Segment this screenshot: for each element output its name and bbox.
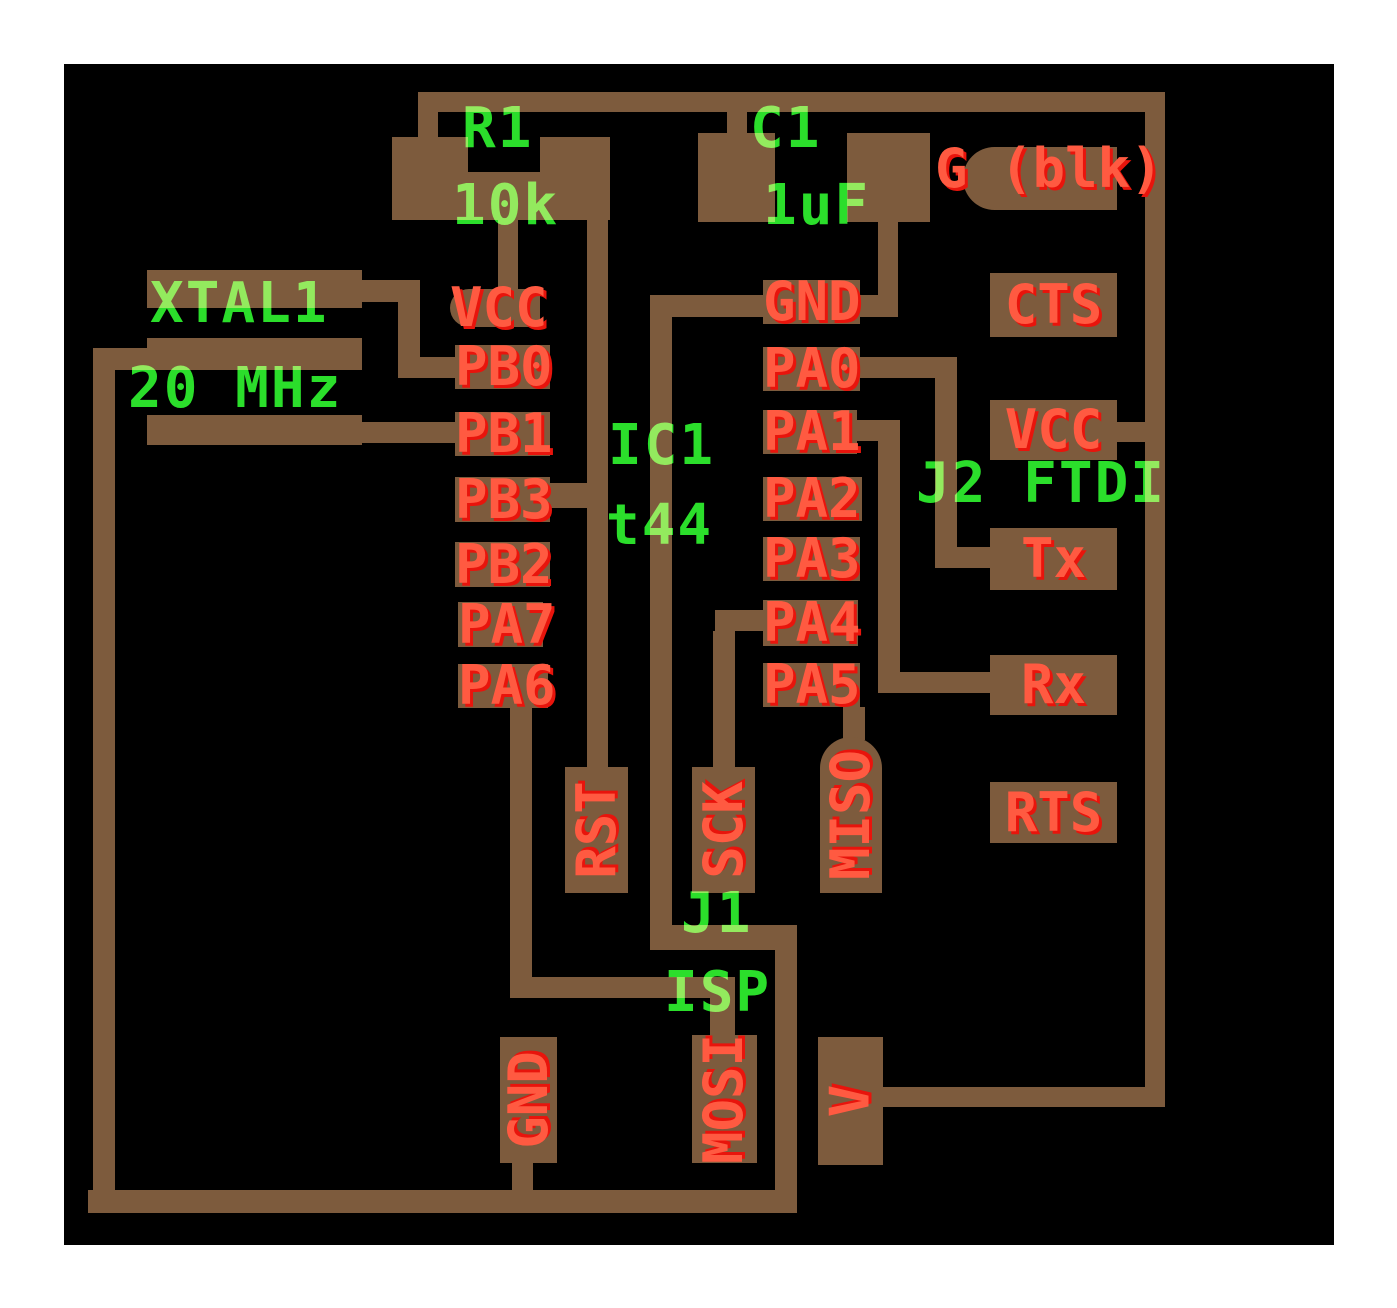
silkscreen-label-c1_value: 1uF xyxy=(763,178,870,234)
pad-rx[interactable]: Rx xyxy=(990,655,1117,715)
pin-label-pa7: PA7 xyxy=(458,598,556,652)
pin-label-pa1: PA1 xyxy=(763,405,861,459)
copper-trace-gnd[interactable] xyxy=(878,222,898,297)
pin-label-rx: Rx xyxy=(1021,658,1086,712)
pad-gnd[interactable]: GND xyxy=(763,280,860,324)
silkscreen-label-j1_value: ISP xyxy=(664,965,771,1021)
pin-label-vcc: VCC xyxy=(450,281,548,335)
pad-pa1[interactable]: PA1 xyxy=(763,410,857,454)
pin-label-tx: Tx xyxy=(1021,532,1086,586)
silkscreen-label-r1_value: 10k xyxy=(452,178,559,234)
pad-pa5[interactable]: PA5 xyxy=(763,663,860,707)
copper-trace-pa1-rx[interactable] xyxy=(855,420,900,441)
pin-label-v: V xyxy=(823,1085,877,1118)
pin-label-mosi: MOSI xyxy=(698,1034,752,1164)
copper-trace-pa0-tx[interactable] xyxy=(935,547,990,568)
copper-trace-xtal-pb0[interactable] xyxy=(398,302,420,359)
copper-trace-pa6-mosi[interactable] xyxy=(510,703,532,998)
pad-pa6[interactable]: PA6 xyxy=(458,664,548,708)
pad-tx[interactable]: Tx xyxy=(990,528,1117,590)
pin-label-pb1: PB1 xyxy=(455,407,553,461)
copper-trace-rst[interactable] xyxy=(587,220,608,767)
copper-trace-vcc[interactable] xyxy=(883,1087,1145,1107)
copper-trace-pa1-rx[interactable] xyxy=(878,672,990,693)
silkscreen-label-j2_ref: J2 FTDI xyxy=(916,456,1166,512)
pin-label-pa3: PA3 xyxy=(763,532,861,586)
pad-pb0[interactable]: PB0 xyxy=(455,345,550,389)
silkscreen-label-xtal_value: 20 MHz xyxy=(128,361,342,417)
copper-trace-xtal-pb0[interactable] xyxy=(398,357,461,378)
copper-trace-pa4-sck[interactable] xyxy=(713,631,735,767)
silkscreen-label-c1_ref: C1 xyxy=(750,101,821,157)
copper-trace-xtal-pb1[interactable] xyxy=(362,422,461,443)
copper-trace-pa0-tx[interactable] xyxy=(858,357,957,378)
pin-label-miso: MISO xyxy=(824,750,878,880)
pin-label-rst: RST xyxy=(570,781,624,879)
pad-pb3[interactable]: PB3 xyxy=(455,477,550,522)
copper-trace-gnd[interactable] xyxy=(650,317,672,950)
pad-pa7[interactable]: PA7 xyxy=(458,602,543,647)
pad-rst[interactable]: RST xyxy=(565,767,628,893)
pad-mosi[interactable]: MOSI xyxy=(692,1035,757,1163)
pad-vcc[interactable]: VCC xyxy=(450,289,540,327)
pad-sck[interactable]: SCK xyxy=(692,767,755,893)
pad-pa0[interactable]: PA0 xyxy=(763,347,860,391)
pin-label-vcc: VCC xyxy=(1005,403,1103,457)
pin-label-sck: SCK xyxy=(697,781,751,879)
pin-label-g-blk: G (blk) xyxy=(935,142,1163,196)
pin-label-gnd: GND xyxy=(763,275,861,329)
copper-trace-gnd[interactable] xyxy=(88,1190,797,1213)
pad-v[interactable]: V xyxy=(818,1037,883,1165)
copper-trace-vcc[interactable] xyxy=(1145,92,1165,1107)
pcb-screenshot: VCCPB0PB1PB3PB2PA7PA6GNDPA0PA1PA2PA3PA4P… xyxy=(0,0,1397,1308)
copper-trace-gnd[interactable] xyxy=(775,950,797,1213)
pin-label-pb2: PB2 xyxy=(455,538,553,592)
pad-pa3[interactable]: PA3 xyxy=(763,537,860,581)
silkscreen-label-ic_ref: IC1 xyxy=(608,418,715,474)
pad-cts[interactable]: CTS xyxy=(990,273,1117,337)
silkscreen-label-ic_value: t44 xyxy=(606,498,713,554)
copper-trace-xtal-pb0[interactable] xyxy=(362,280,420,302)
pin-label-pa0: PA0 xyxy=(763,342,861,396)
pin-label-pa4: PA4 xyxy=(763,596,861,650)
pin-label-pa2: PA2 xyxy=(763,472,861,526)
copper-trace-gnd[interactable] xyxy=(512,1163,533,1193)
copper-trace-pa4-sck[interactable] xyxy=(715,610,763,631)
pad-miso[interactable]: MISO xyxy=(820,737,882,893)
pad-pa4[interactable]: PA4 xyxy=(763,600,858,646)
pad-rts[interactable]: RTS xyxy=(990,782,1117,843)
pin-label-pa6: PA6 xyxy=(458,659,556,713)
pad-pa2[interactable]: PA2 xyxy=(763,477,862,521)
silkscreen-label-xtal_ref: XTAL1 xyxy=(150,276,329,332)
pin-label-pa5: PA5 xyxy=(763,658,861,712)
pad-gnd[interactable]: GND xyxy=(500,1037,557,1163)
silkscreen-label-j1_ref: J1 xyxy=(681,886,752,942)
pin-label-pb3: PB3 xyxy=(455,473,553,527)
pad-pb1[interactable]: PB1 xyxy=(455,412,550,456)
pad-pb2[interactable]: PB2 xyxy=(455,542,550,587)
pin-label-pb0: PB0 xyxy=(455,340,553,394)
pin-label-gnd: GND xyxy=(502,1051,556,1149)
copper-trace-pa1-rx[interactable] xyxy=(878,441,900,673)
pin-label-rts: RTS xyxy=(1005,786,1103,840)
pin-label-cts: CTS xyxy=(1005,278,1103,332)
copper-trace-rst[interactable] xyxy=(550,483,590,508)
silkscreen-label-r1_ref: R1 xyxy=(462,101,533,157)
copper-trace-gnd[interactable] xyxy=(93,348,115,1213)
